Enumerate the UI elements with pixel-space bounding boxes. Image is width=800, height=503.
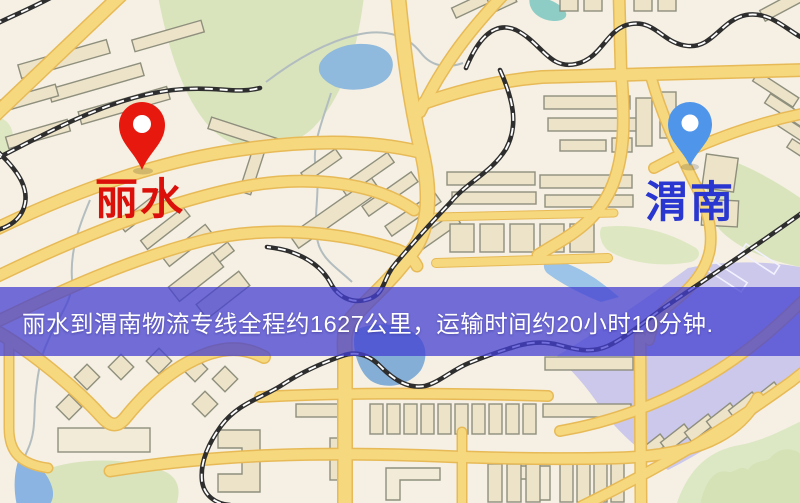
destination-pin-hole xyxy=(682,115,699,132)
map-canvas[interactable]: 丽水 渭南 xyxy=(0,0,800,503)
origin-city-label: 丽水 xyxy=(95,176,185,224)
origin-pin-hole xyxy=(133,115,151,133)
route-info-text: 丽水到渭南物流专线全程约1627公里，运输时间约20小时10分钟. xyxy=(22,305,714,339)
map-view[interactable]: 丽水 渭南 丽水到渭南物流专线全程约1627公里，运输时间约20小时10分钟. xyxy=(0,0,800,503)
destination-city-label: 渭南 xyxy=(645,179,735,227)
route-info-banner: 丽水到渭南物流专线全程约1627公里，运输时间约20小时10分钟. xyxy=(0,287,800,356)
